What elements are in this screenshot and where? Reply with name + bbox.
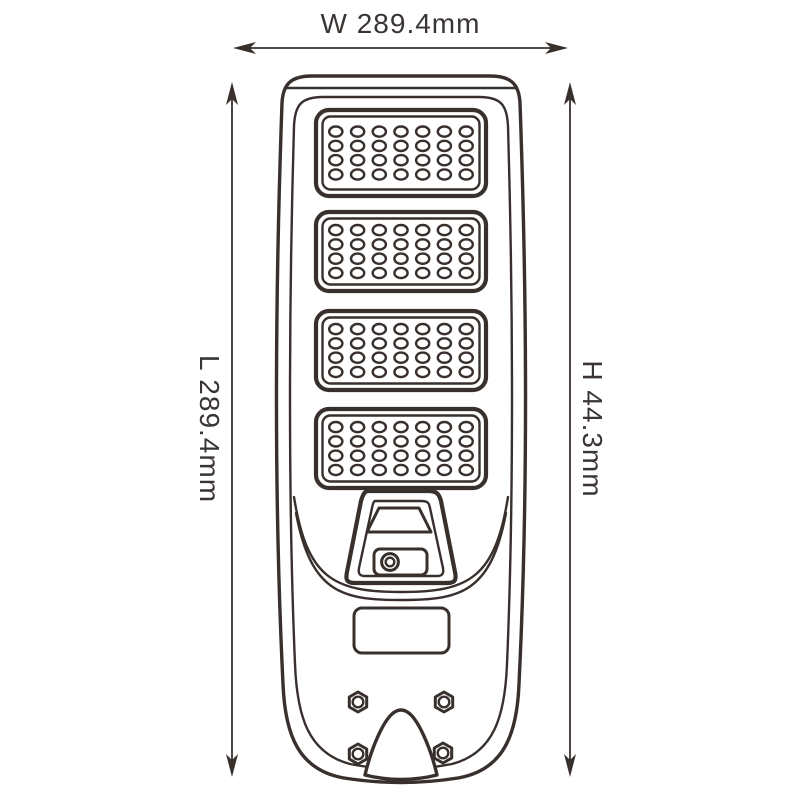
led-dot — [438, 353, 451, 363]
led-dot — [416, 436, 429, 446]
led-dot — [373, 141, 386, 151]
led-dot — [394, 353, 407, 363]
led-dot — [373, 353, 386, 363]
led-dot — [329, 436, 342, 446]
length-dimension-label: L 289.4mm — [191, 309, 227, 549]
led-panel — [316, 212, 486, 291]
led-dot — [416, 422, 429, 432]
led-dot — [416, 169, 429, 179]
led-dot — [329, 353, 342, 363]
led-dot — [329, 141, 342, 151]
mounting-screw — [434, 743, 451, 763]
screw-hole — [353, 697, 364, 708]
led-dot — [416, 451, 429, 461]
led-dot — [416, 353, 429, 363]
led-dot — [460, 465, 473, 475]
led-dot — [373, 239, 386, 249]
led-panel-group — [316, 110, 486, 488]
led-dot — [460, 169, 473, 179]
led-dot — [394, 169, 407, 179]
led-dot — [329, 225, 342, 235]
body-outline — [277, 76, 526, 783]
sensor-housing — [294, 491, 508, 600]
led-dot — [394, 141, 407, 151]
led-dot — [460, 127, 473, 137]
led-dot — [329, 324, 342, 334]
screw-hole — [438, 748, 449, 759]
led-dot — [351, 451, 364, 461]
led-dot — [438, 127, 451, 137]
mounting-screw — [349, 744, 366, 764]
led-dot — [351, 155, 364, 165]
led-dot — [394, 465, 407, 475]
led-dot — [394, 338, 407, 348]
led-dot — [394, 422, 407, 432]
led-dot — [329, 239, 342, 249]
led-dot — [416, 141, 429, 151]
led-dot — [394, 324, 407, 334]
led-dot — [460, 367, 473, 377]
led-panel-outer-frame — [316, 110, 486, 196]
led-dot — [373, 155, 386, 165]
mounting-screw — [435, 692, 452, 712]
led-dot — [394, 155, 407, 165]
technical-drawing-page: W 289.4mm L 289.4mm H 44.3mm — [0, 0, 801, 801]
led-dot — [438, 141, 451, 151]
led-dot — [373, 436, 386, 446]
led-dot — [351, 465, 364, 475]
led-dot — [351, 169, 364, 179]
led-dot — [351, 367, 364, 377]
led-panel — [316, 409, 486, 488]
led-dot — [438, 436, 451, 446]
led-dot — [460, 451, 473, 461]
led-dot — [438, 254, 451, 264]
collar-inner-curve — [296, 513, 506, 600]
led-dot — [351, 141, 364, 151]
led-panel — [316, 311, 486, 390]
led-dot — [394, 127, 407, 137]
led-dot — [460, 155, 473, 165]
led-dot — [416, 324, 429, 334]
led-dot — [329, 268, 342, 278]
led-dot — [416, 338, 429, 348]
led-dot — [460, 436, 473, 446]
led-dot — [329, 422, 342, 432]
led-dot — [329, 338, 342, 348]
led-dot — [460, 254, 473, 264]
led-dot — [460, 422, 473, 432]
led-dot — [351, 338, 364, 348]
led-dot — [460, 239, 473, 249]
sensor-trapezoid-inner — [359, 501, 444, 576]
led-dot — [329, 254, 342, 264]
sensor-trapezoid-outer — [346, 491, 455, 583]
led-dot — [351, 254, 364, 264]
led-dot — [394, 436, 407, 446]
led-dot — [394, 254, 407, 264]
led-dot — [438, 465, 451, 475]
led-dot — [438, 422, 451, 432]
led-dot — [351, 353, 364, 363]
led-dot — [438, 324, 451, 334]
led-dot — [373, 254, 386, 264]
led-dot — [416, 465, 429, 475]
led-dot — [460, 353, 473, 363]
sensor-window — [367, 508, 431, 532]
led-dot — [460, 268, 473, 278]
bottom-cover — [365, 710, 437, 780]
led-dot — [373, 268, 386, 278]
led-dot — [394, 451, 407, 461]
screw-hole — [439, 697, 450, 708]
camera-lens-outer — [382, 554, 399, 571]
led-dot — [329, 451, 342, 461]
led-dot — [329, 155, 342, 165]
led-dot — [329, 367, 342, 377]
led-dot — [373, 324, 386, 334]
width-dimension-arrow — [233, 42, 568, 54]
led-dot — [460, 338, 473, 348]
led-dot — [416, 225, 429, 235]
led-dot — [438, 239, 451, 249]
street-light-technical-drawing — [0, 0, 801, 801]
width-dimension-label: W 289.4mm — [0, 8, 801, 40]
led-dot — [373, 169, 386, 179]
screw-hole — [353, 749, 364, 760]
led-dot — [416, 127, 429, 137]
led-dot — [394, 239, 407, 249]
length-dimension-arrow — [226, 82, 238, 777]
led-dot — [329, 127, 342, 137]
led-dot — [373, 367, 386, 377]
led-dot — [438, 155, 451, 165]
led-dot — [416, 254, 429, 264]
led-dot — [329, 465, 342, 475]
led-dot — [394, 367, 407, 377]
mounting-screw — [349, 692, 366, 712]
led-dot — [351, 436, 364, 446]
led-dot — [460, 225, 473, 235]
led-dot — [438, 367, 451, 377]
led-dot — [373, 338, 386, 348]
height-dimension-label: H 44.3mm — [574, 309, 610, 549]
camera-lens-inner — [386, 558, 395, 567]
led-dot — [394, 225, 407, 235]
led-dot — [416, 268, 429, 278]
led-dot — [438, 451, 451, 461]
led-dot — [351, 239, 364, 249]
led-dot — [416, 155, 429, 165]
led-dot — [438, 338, 451, 348]
collar-outer-curve — [294, 497, 508, 592]
led-dot — [351, 225, 364, 235]
led-dot — [373, 225, 386, 235]
led-dot — [394, 268, 407, 278]
led-dot — [438, 225, 451, 235]
led-panel-inner-frame — [323, 219, 480, 285]
led-dot — [373, 127, 386, 137]
led-dot — [351, 268, 364, 278]
led-dot — [351, 324, 364, 334]
led-dot — [460, 141, 473, 151]
led-dot — [438, 268, 451, 278]
led-panel — [316, 110, 486, 196]
led-dot — [373, 422, 386, 432]
led-dot — [416, 367, 429, 377]
led-panel-inner-frame — [323, 318, 480, 384]
led-dot — [460, 324, 473, 334]
led-dot — [351, 127, 364, 137]
led-dot — [416, 239, 429, 249]
led-panel-inner-frame — [323, 416, 480, 482]
label-plate — [354, 608, 449, 653]
led-dot — [373, 451, 386, 461]
led-dot — [351, 422, 364, 432]
led-dot — [438, 169, 451, 179]
led-dot — [373, 465, 386, 475]
led-dot — [329, 169, 342, 179]
